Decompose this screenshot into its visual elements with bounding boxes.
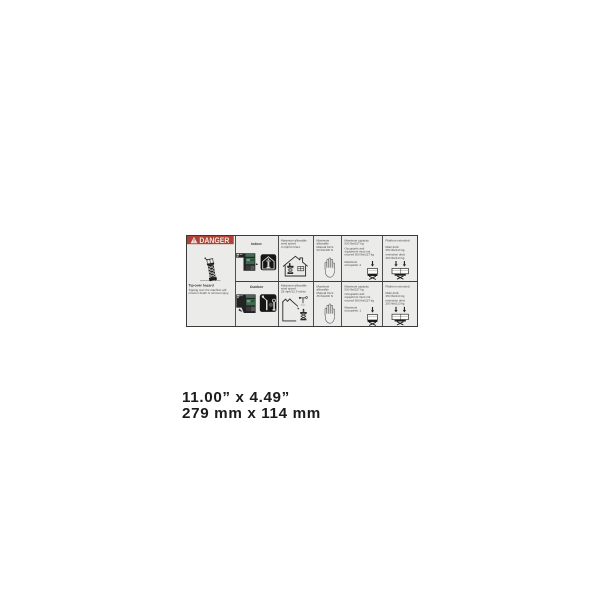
svg-text:350 lbs/114 kg: 350 lbs/114 kg — [385, 294, 404, 298]
svg-text:DANGER: DANGER — [199, 236, 229, 245]
svg-text:28 mph/12.5 m/sec: 28 mph/12.5 m/sec — [281, 290, 307, 294]
svg-text:250 lbs/113 kg: 250 lbs/113 kg — [385, 256, 404, 260]
svg-text:350 lbs/114 kg: 350 lbs/114 kg — [385, 248, 404, 252]
svg-text:Platform extended:: Platform extended: — [385, 285, 410, 289]
svg-text:250 lbs/113 kg: 250 lbs/113 kg — [385, 302, 404, 306]
svg-text:500 lbs/227 kg: 500 lbs/227 kg — [344, 242, 363, 246]
svg-text:exceed 500 lbs/227 kg: exceed 500 lbs/227 kg — [344, 299, 374, 303]
svg-text:Platform extended:: Platform extended: — [385, 239, 410, 243]
svg-text:90 lbs/400 N: 90 lbs/400 N — [316, 248, 333, 252]
svg-text:occupants: 2: occupants: 2 — [344, 263, 361, 267]
svg-text:45 lbs/200 N: 45 lbs/200 N — [316, 294, 333, 298]
svg-text:m/sec: m/sec — [300, 304, 305, 307]
svg-text:Tip-over hazard: Tip-over hazard — [188, 284, 213, 288]
svg-text:Indoor: Indoor — [251, 242, 262, 246]
svg-text:result in death or serious inj: result in death or serious injury. — [188, 291, 229, 295]
svg-text:exceed 500 lbs/227 kg: exceed 500 lbs/227 kg — [344, 253, 374, 257]
svg-text:500 lbs/227 kg: 500 lbs/227 kg — [344, 288, 363, 292]
svg-text:occupants: 1: occupants: 1 — [344, 309, 361, 313]
svg-text:0 mph/0 m/sec: 0 mph/0 m/sec — [281, 245, 301, 249]
svg-text:Outdoor: Outdoor — [250, 285, 264, 289]
